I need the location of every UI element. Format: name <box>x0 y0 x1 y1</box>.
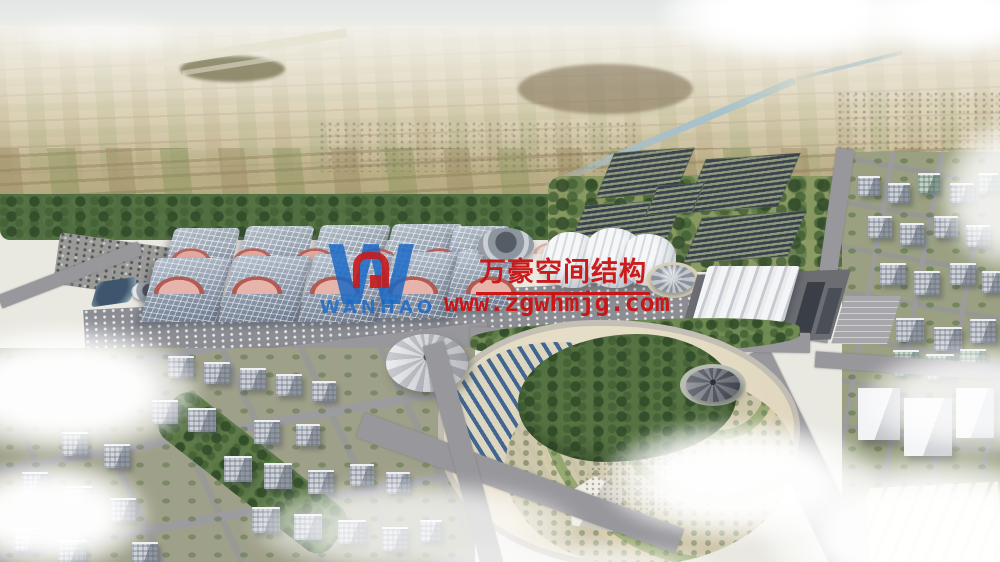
building <box>880 263 906 285</box>
cone-pavilion-dark <box>686 368 740 402</box>
building <box>982 271 1000 293</box>
exhibition-hall <box>140 258 232 322</box>
building <box>254 420 280 444</box>
building <box>914 271 940 295</box>
building <box>868 216 892 238</box>
round-hall <box>478 228 534 262</box>
building <box>900 223 924 245</box>
exhibition-hall <box>218 256 312 322</box>
building <box>858 176 880 196</box>
building <box>950 263 976 285</box>
building <box>312 381 336 401</box>
building <box>918 173 940 193</box>
convention-center <box>692 266 800 322</box>
building <box>132 542 158 562</box>
distant-dark-fields <box>518 64 693 114</box>
building <box>264 463 292 489</box>
building <box>896 318 924 342</box>
cloud <box>20 18 180 54</box>
aerial-architectural-rendering: W WANHAO 万豪空间结构 www.zgwhmjg.com <box>0 0 1000 562</box>
round-pavilion <box>651 265 695 293</box>
building <box>276 374 302 396</box>
building <box>240 368 266 390</box>
building <box>224 456 252 482</box>
building <box>970 319 996 343</box>
building <box>888 183 910 203</box>
building <box>204 362 230 384</box>
building <box>296 424 320 446</box>
